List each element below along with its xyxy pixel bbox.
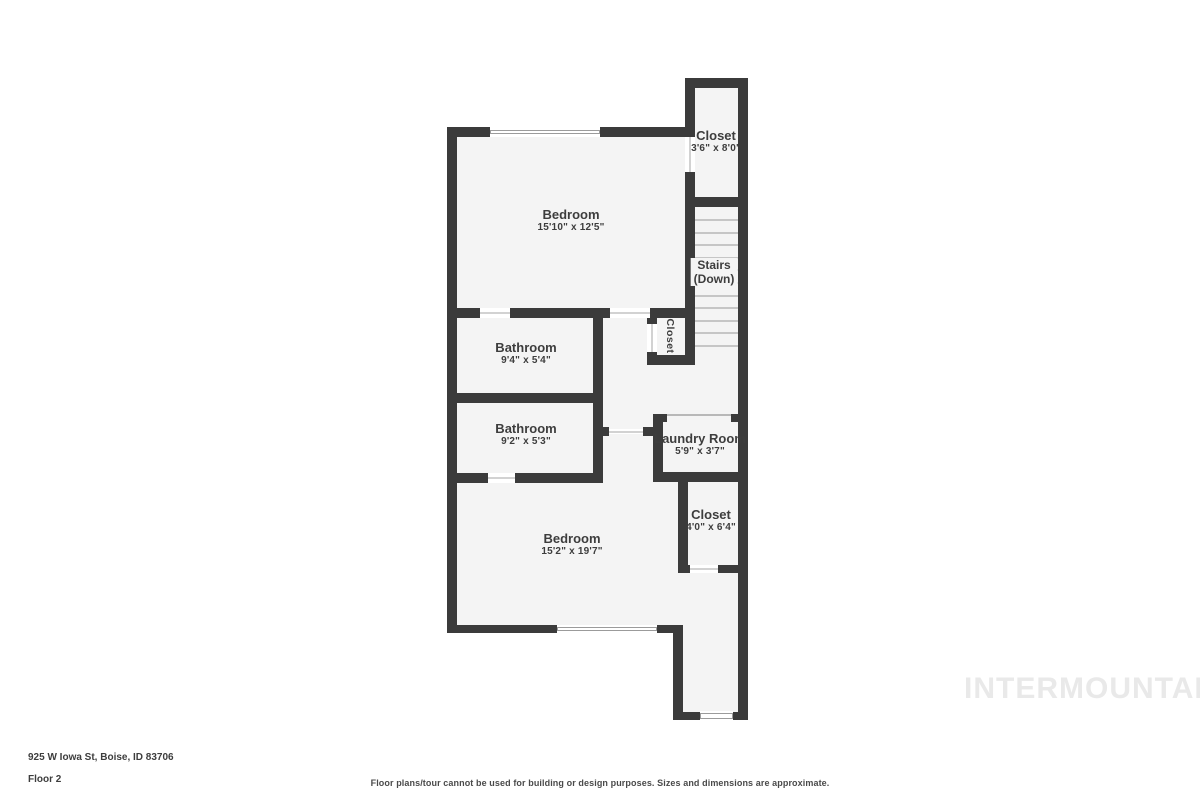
- room-dims: 15'2" x 19'7": [541, 546, 602, 558]
- stair-tread: [695, 345, 738, 347]
- room-name: Bedroom: [537, 207, 604, 222]
- room-name: Bedroom: [541, 531, 602, 546]
- wall: [673, 712, 700, 720]
- room-dims: 3'6" x 8'0": [691, 143, 741, 155]
- wall: [600, 127, 695, 137]
- stair-tread: [695, 295, 738, 297]
- wall: [643, 427, 653, 436]
- room-label-closet-2: Closet 4'0" x 6'4": [686, 507, 736, 534]
- room-label-bathroom-1: Bathroom 9'4" x 5'4": [495, 340, 556, 367]
- room-name: Closet: [691, 128, 741, 143]
- room-dims: 4'0" x 6'4": [686, 522, 736, 534]
- room-label-laundry: Laundry Room 5'9" x 3'7": [654, 431, 746, 458]
- laundry-opening-line: [667, 414, 731, 416]
- wall: [447, 473, 488, 483]
- door-hallway: [609, 429, 643, 434]
- wall: [515, 473, 603, 483]
- wall: [447, 393, 603, 403]
- stair-tread: [695, 219, 738, 221]
- stair-tread: [695, 244, 738, 246]
- room-dims: 9'4" x 5'4": [495, 355, 556, 367]
- wall: [673, 625, 683, 720]
- room-dims: 15'10" x 12'5": [537, 222, 604, 234]
- wall: [718, 565, 748, 573]
- watermark: INTERMOUNTAIN: [964, 672, 1200, 706]
- room-label-bedroom-1: Bedroom 15'10" x 12'5": [537, 207, 604, 234]
- stair-tread: [695, 320, 738, 322]
- floor-label: Floor 2: [28, 774, 61, 785]
- wall: [447, 127, 457, 633]
- room-name: (Down): [694, 272, 735, 286]
- room-name: Stairs: [694, 258, 735, 272]
- stair-tread: [695, 232, 738, 234]
- wall: [653, 472, 748, 482]
- wall: [731, 414, 748, 422]
- room-label-bedroom-2: Bedroom 15'2" x 19'7": [541, 531, 602, 558]
- door-bathroom-2: [488, 473, 515, 483]
- window-bedroom-2: [557, 625, 657, 633]
- window-alcove: [700, 711, 733, 721]
- wall: [678, 565, 690, 573]
- stair-tread: [695, 332, 738, 334]
- door-closet-hall: [647, 324, 657, 352]
- floor-alcove: [673, 625, 748, 720]
- room-name: Bathroom: [495, 421, 556, 436]
- room-label-stairs: Stairs (Down): [691, 258, 738, 286]
- room-name: Bathroom: [495, 340, 556, 355]
- disclaimer-text: Floor plans/tour cannot be used for buil…: [371, 778, 830, 788]
- wall: [647, 355, 694, 365]
- room-name: Laundry Room: [654, 431, 746, 446]
- door-bathroom-1: [480, 308, 510, 318]
- room-label-bathroom-2: Bathroom 9'2" x 5'3": [495, 421, 556, 448]
- stair-tread: [695, 307, 738, 309]
- window-bedroom-1: [490, 127, 600, 137]
- wall: [447, 625, 557, 633]
- property-address: 925 W Iowa St, Boise, ID 83706: [28, 752, 174, 763]
- room-label-closet-top: Closet 3'6" x 8'0": [691, 128, 741, 155]
- room-dims: 5'9" x 3'7": [654, 446, 746, 458]
- room-dims: 9'2" x 5'3": [495, 436, 556, 448]
- room-name: Closet: [686, 507, 736, 522]
- floor-plan: Closet 3'6" x 8'0" Bedroom 15'10" x 12'5…: [0, 0, 1200, 800]
- room-label-closet-hall: Closet: [664, 318, 676, 353]
- wall: [447, 308, 480, 318]
- door-bedroom-1-hall: [610, 308, 650, 318]
- wall: [685, 197, 748, 207]
- door-closet-2: [690, 565, 718, 573]
- wall: [733, 712, 748, 720]
- wall: [738, 78, 748, 720]
